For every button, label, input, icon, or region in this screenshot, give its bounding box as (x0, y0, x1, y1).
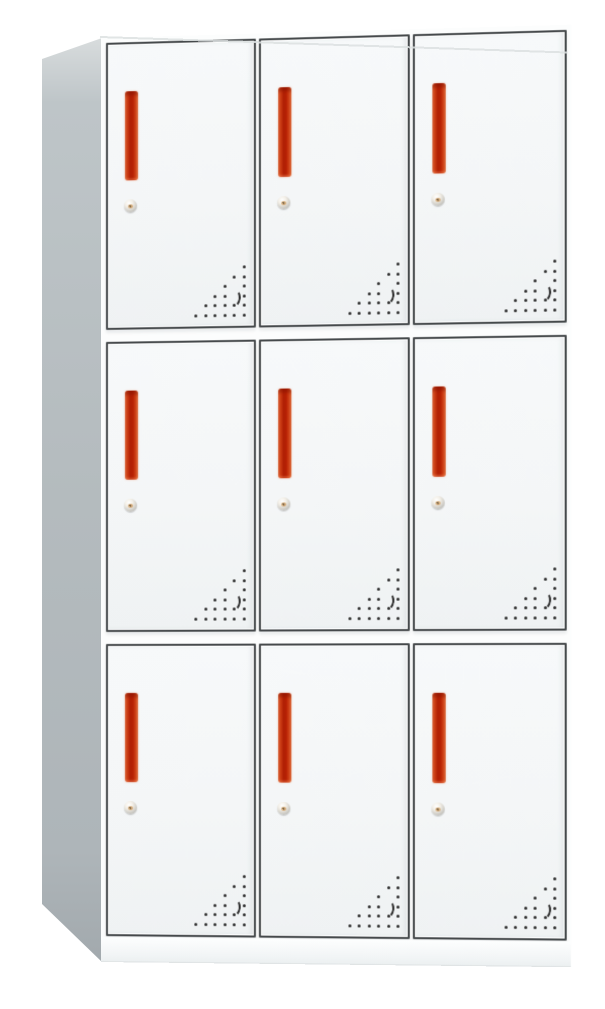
vent-holes (345, 568, 400, 622)
vent-hole (387, 578, 390, 581)
vent-hole (214, 913, 217, 916)
crescent-vent-mark (538, 284, 552, 302)
crescent-vent-mark (227, 289, 241, 307)
vent-hole (524, 916, 527, 919)
vent-hole (534, 279, 537, 282)
locker-door[interactable] (106, 644, 256, 938)
vent-hole (242, 579, 245, 582)
vent-hole (524, 597, 527, 600)
vent-hole (242, 569, 245, 572)
vent-hole (543, 887, 546, 890)
door-handle[interactable] (433, 83, 446, 174)
vent-hole (524, 289, 527, 292)
vent-holes (191, 569, 246, 623)
vent-hole (242, 885, 245, 888)
vent-holes (191, 265, 246, 319)
vent-hole (397, 262, 400, 265)
vent-hole (348, 617, 351, 620)
vent-hole (368, 914, 371, 917)
vent-hole (223, 294, 226, 297)
vent-hole (397, 886, 400, 889)
crescent-vent-mark (538, 591, 552, 609)
vent-hole (214, 923, 217, 926)
vent-hole (214, 903, 217, 906)
vent-hole (377, 914, 380, 917)
vent-hole (368, 597, 371, 600)
vent-hole (534, 308, 537, 311)
door-grid (106, 30, 567, 941)
vent-hole (242, 598, 245, 601)
vent-hole (233, 885, 236, 888)
vent-hole (214, 314, 217, 317)
vent-hole (233, 923, 236, 926)
door-handle[interactable] (125, 693, 138, 782)
vent-hole (377, 292, 380, 295)
vent-hole (204, 913, 207, 916)
vent-hole (377, 282, 380, 285)
vent-hole (553, 577, 556, 580)
vent-hole (504, 925, 507, 928)
keyhole-lock[interactable] (432, 802, 445, 815)
vent-hole (514, 925, 517, 928)
vent-hole (397, 301, 400, 304)
vent-hole (553, 877, 556, 880)
locker-door[interactable] (106, 340, 256, 632)
vent-hole (504, 309, 507, 312)
vent-hole (242, 617, 245, 620)
crescent-vent-mark (382, 286, 396, 304)
vent-hole (553, 260, 556, 263)
vent-hole (358, 617, 361, 620)
vent-hole (534, 299, 537, 302)
door-handle[interactable] (278, 693, 291, 783)
locker-door[interactable] (259, 34, 411, 327)
vent-hole (514, 616, 517, 619)
vent-hole (358, 607, 361, 610)
vent-hole (534, 289, 537, 292)
locker-door[interactable] (413, 643, 567, 941)
vent-hole (223, 285, 226, 288)
vent-hole (534, 906, 537, 909)
keyhole-lock[interactable] (124, 199, 137, 212)
keyhole-lock[interactable] (432, 193, 445, 206)
vent-hole (377, 311, 380, 314)
vent-hole (368, 905, 371, 908)
vent-hole (524, 906, 527, 909)
vent-hole (204, 922, 207, 925)
vent-hole (377, 616, 380, 619)
vent-hole (543, 926, 546, 929)
vent-hole (377, 607, 380, 610)
vent-hole (553, 298, 556, 301)
vent-holes (500, 877, 556, 931)
vent-hole (348, 311, 351, 314)
vent-hole (242, 904, 245, 907)
vent-hole (377, 301, 380, 304)
vent-hole (397, 924, 400, 927)
vent-hole (242, 588, 245, 591)
vent-hole (368, 924, 371, 927)
vent-hole (553, 567, 556, 570)
vent-hole (358, 302, 361, 305)
vent-hole (194, 314, 197, 317)
vent-hole (223, 607, 226, 610)
vent-hole (377, 924, 380, 927)
vent-hole (204, 617, 207, 620)
door-handle[interactable] (125, 391, 138, 480)
vent-hole (534, 926, 537, 929)
vent-hole (242, 875, 245, 878)
vent-hole (242, 923, 245, 926)
vent-hole (214, 608, 217, 611)
vent-hole (348, 924, 351, 927)
vent-hole (524, 606, 527, 609)
locker-product-photo (0, 0, 605, 1009)
vent-hole (514, 309, 517, 312)
vent-hole (242, 284, 245, 287)
vent-hole (553, 616, 556, 619)
vent-hole (223, 894, 226, 897)
vent-hole (524, 616, 527, 619)
vent-hole (368, 301, 371, 304)
vent-hole (553, 269, 556, 272)
vent-hole (553, 308, 556, 311)
vent-hole (242, 607, 245, 610)
vent-hole (242, 913, 245, 916)
cabinet-base-plinth (101, 937, 571, 967)
vent-hole (534, 897, 537, 900)
vent-hole (553, 587, 556, 590)
vent-hole (534, 587, 537, 590)
vent-holes (345, 262, 400, 317)
locker-door[interactable] (413, 335, 567, 631)
vent-hole (504, 616, 507, 619)
vent-hole (534, 916, 537, 919)
vent-hole (214, 294, 217, 297)
keyhole-lock[interactable] (124, 801, 137, 814)
vent-hole (397, 895, 400, 898)
crescent-vent-mark (538, 901, 552, 920)
vent-hole (233, 617, 236, 620)
vent-hole (204, 608, 207, 611)
cabinet-front-face (101, 25, 571, 968)
vent-hole (194, 617, 197, 620)
vent-hole (358, 924, 361, 927)
vent-hole (397, 597, 400, 600)
vent-hole (397, 311, 400, 314)
keyhole-lock[interactable] (277, 497, 290, 510)
vent-hole (377, 597, 380, 600)
vent-hole (214, 617, 217, 620)
vent-hole (397, 607, 400, 610)
vent-hole (514, 606, 517, 609)
vent-hole (223, 617, 226, 620)
vent-hole (233, 313, 236, 316)
vent-hole (223, 313, 226, 316)
vent-hole (223, 913, 226, 916)
vent-hole (534, 616, 537, 619)
vent-hole (397, 578, 400, 581)
vent-hole (553, 926, 556, 929)
vent-hole (524, 299, 527, 302)
vent-hole (387, 886, 390, 889)
vent-hole (214, 598, 217, 601)
vent-hole (214, 304, 217, 307)
vent-hole (397, 568, 400, 571)
vent-hole (397, 291, 400, 294)
vent-hole (204, 304, 207, 307)
vent-hole (387, 616, 390, 619)
vent-hole (543, 577, 546, 580)
crescent-vent-mark (227, 898, 241, 916)
vent-hole (543, 308, 546, 311)
vent-hole (223, 588, 226, 591)
vent-hole (242, 304, 245, 307)
vent-hole (397, 282, 400, 285)
vent-hole (514, 299, 517, 302)
vent-hole (233, 579, 236, 582)
keyhole-lock[interactable] (432, 496, 445, 509)
vent-hole (242, 894, 245, 897)
vent-hole (242, 313, 245, 316)
locker-door[interactable] (259, 643, 411, 939)
vent-hole (397, 876, 400, 879)
vent-hole (397, 616, 400, 619)
vent-hole (233, 275, 236, 278)
vent-hole (358, 311, 361, 314)
vent-hole (534, 597, 537, 600)
vent-hole (543, 269, 546, 272)
vent-hole (553, 606, 556, 609)
vent-hole (194, 922, 197, 925)
vent-hole (204, 314, 207, 317)
vent-hole (397, 272, 400, 275)
vent-hole (387, 924, 390, 927)
vent-hole (377, 905, 380, 908)
locker-door[interactable] (259, 337, 411, 631)
vent-hole (397, 915, 400, 918)
vent-hole (223, 598, 226, 601)
vent-hole (242, 294, 245, 297)
vent-hole (368, 607, 371, 610)
vent-hole (387, 272, 390, 275)
vent-hole (553, 906, 556, 909)
vent-hole (368, 617, 371, 620)
vent-holes (500, 567, 556, 621)
vent-hole (553, 887, 556, 890)
vent-hole (387, 311, 390, 314)
crescent-vent-mark (382, 900, 396, 918)
vent-holes (191, 875, 246, 929)
vent-hole (553, 596, 556, 599)
vent-hole (223, 923, 226, 926)
vent-holes (500, 260, 556, 315)
vent-hole (368, 311, 371, 314)
vent-hole (534, 606, 537, 609)
vent-hole (397, 905, 400, 908)
vent-hole (553, 279, 556, 282)
vent-hole (524, 308, 527, 311)
vent-hole (242, 275, 245, 278)
locker-door[interactable] (413, 30, 567, 325)
vent-hole (514, 916, 517, 919)
locker-door[interactable] (106, 39, 256, 330)
vent-hole (358, 914, 361, 917)
cabinet-side-panel (42, 38, 102, 962)
crescent-vent-mark (382, 592, 396, 610)
vent-hole (242, 265, 245, 268)
door-handle[interactable] (278, 388, 291, 478)
vent-hole (543, 616, 546, 619)
vent-holes (345, 876, 400, 930)
vent-hole (553, 289, 556, 292)
vent-hole (397, 588, 400, 591)
vent-hole (223, 304, 226, 307)
crescent-vent-mark (227, 593, 241, 611)
vent-hole (377, 895, 380, 898)
vent-hole (377, 588, 380, 591)
door-handle[interactable] (278, 87, 291, 177)
vent-hole (368, 292, 371, 295)
vent-hole (553, 916, 556, 919)
door-handle[interactable] (433, 693, 446, 783)
vent-hole (524, 925, 527, 928)
door-handle[interactable] (125, 91, 138, 180)
keyhole-lock[interactable] (277, 196, 290, 209)
door-handle[interactable] (433, 386, 446, 476)
vent-hole (553, 897, 556, 900)
vent-hole (223, 904, 226, 907)
keyhole-lock[interactable] (277, 802, 290, 815)
keyhole-lock[interactable] (124, 499, 137, 512)
